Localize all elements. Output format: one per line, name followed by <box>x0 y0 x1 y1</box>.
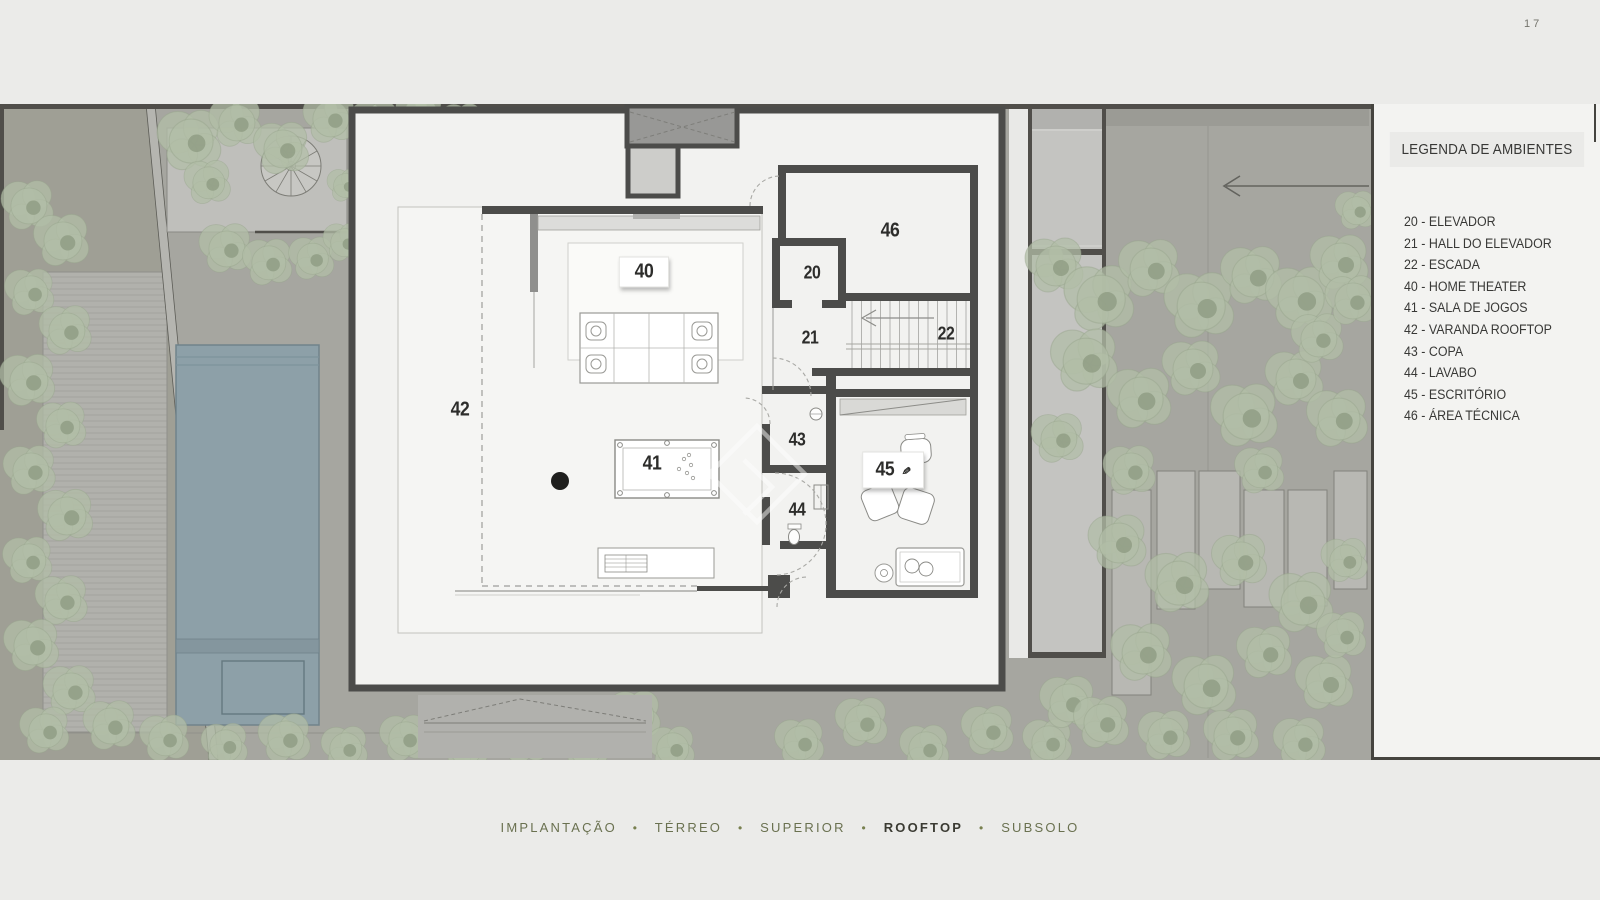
panel-corner-tick <box>1594 104 1596 142</box>
nav-item-superior[interactable]: SUPERIOR <box>760 820 846 835</box>
nav-separator: • <box>851 821 877 835</box>
swimming-pool <box>176 345 319 725</box>
legend-item: 21 - HALL DO ELEVADOR <box>1404 233 1584 255</box>
lower-roof-zone <box>418 695 652 758</box>
room-label-46: 46 <box>881 220 900 243</box>
nav-item-rooftop[interactable]: ROOFTOP <box>884 820 963 835</box>
nav-separator: • <box>728 821 754 835</box>
room-label-41: 41 <box>643 453 662 476</box>
room-label-43: 43 <box>789 430 806 451</box>
site-plan-canvas <box>0 104 1371 760</box>
nav-separator: • <box>969 821 995 835</box>
legend-item: 20 - ELEVADOR <box>1404 211 1584 233</box>
room-label-22: 22 <box>938 324 955 345</box>
legend-item: 46 - ÁREA TÉCNICA <box>1404 405 1584 427</box>
room-label-45: 45 ✎ <box>862 452 923 489</box>
sideboard <box>598 548 714 578</box>
floor-navigation: IMPLANTAÇÃO • TÉRREO • SUPERIOR • ROOFTO… <box>0 820 1580 835</box>
structural-column <box>551 472 569 490</box>
room-label-21: 21 <box>802 328 819 349</box>
legend-list: 20 - ELEVADOR 21 - HALL DO ELEVADOR 22 -… <box>1374 211 1600 427</box>
room-label-40: 40 <box>619 257 669 288</box>
room-label-20: 20 <box>804 263 821 284</box>
nav-item-subsolo[interactable]: SUBSOLO <box>1001 820 1079 835</box>
legend-item: 45 - ESCRITÓRIO <box>1404 384 1584 406</box>
page-number: 17 <box>1524 18 1564 30</box>
legend-item: 40 - HOME THEATER <box>1404 276 1584 298</box>
pen-icon: ✎ <box>900 464 914 476</box>
legend-item: 44 - LAVABO <box>1404 362 1584 384</box>
nav-item-implantacao[interactable]: IMPLANTAÇÃO <box>501 820 617 835</box>
legend-panel: LEGENDA DE AMBIENTES 20 - ELEVADOR 21 - … <box>1371 104 1600 760</box>
room-45-number: 45 <box>875 459 894 482</box>
legend-item: 41 - SALA DE JOGOS <box>1404 297 1584 319</box>
room-label-42: 42 <box>451 399 470 422</box>
nav-separator: • <box>623 821 649 835</box>
legend-item: 42 - VARANDA ROOFTOP <box>1404 319 1584 341</box>
room-label-44: 44 <box>789 500 806 521</box>
billiard-table <box>615 440 719 498</box>
presentation-page: 40 41 42 43 44 45 ✎ 46 20 21 22 LEGENDA … <box>0 0 1600 900</box>
legend-item: 43 - COPA <box>1404 341 1584 363</box>
building <box>352 106 1002 688</box>
site-plan-band: 40 41 42 43 44 45 ✎ 46 20 21 22 <box>0 104 1371 760</box>
legend-item: 22 - ESCADA <box>1404 254 1584 276</box>
nav-item-terreo[interactable]: TÉRREO <box>655 820 722 835</box>
legend-title: LEGENDA DE AMBIENTES <box>1390 132 1584 167</box>
